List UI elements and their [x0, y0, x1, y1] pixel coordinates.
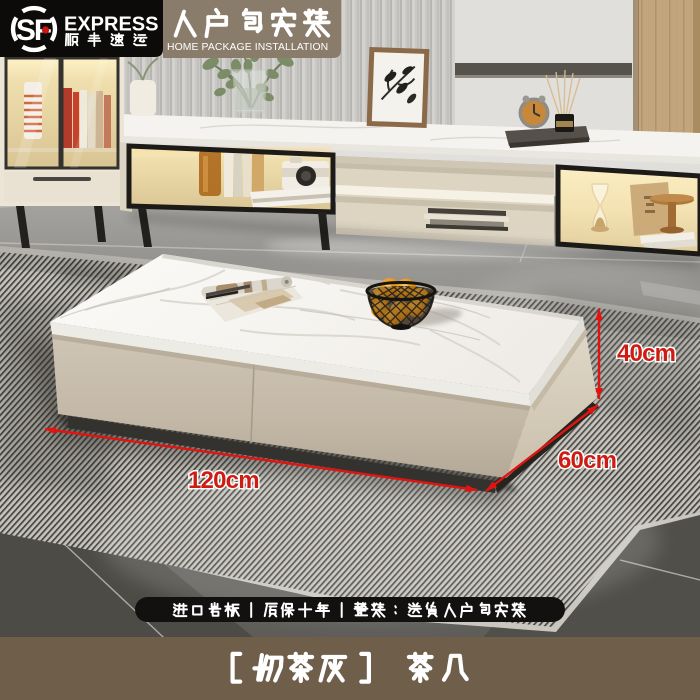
svg-text:40cm: 40cm [617, 340, 675, 367]
svg-text:HOME PACKAGE INSTALLATION: HOME PACKAGE INSTALLATION [167, 42, 328, 53]
svg-text:120cm: 120cm [188, 467, 259, 494]
svg-text:EXPRESS: EXPRESS [64, 14, 158, 36]
svg-text:60cm: 60cm [558, 447, 616, 474]
